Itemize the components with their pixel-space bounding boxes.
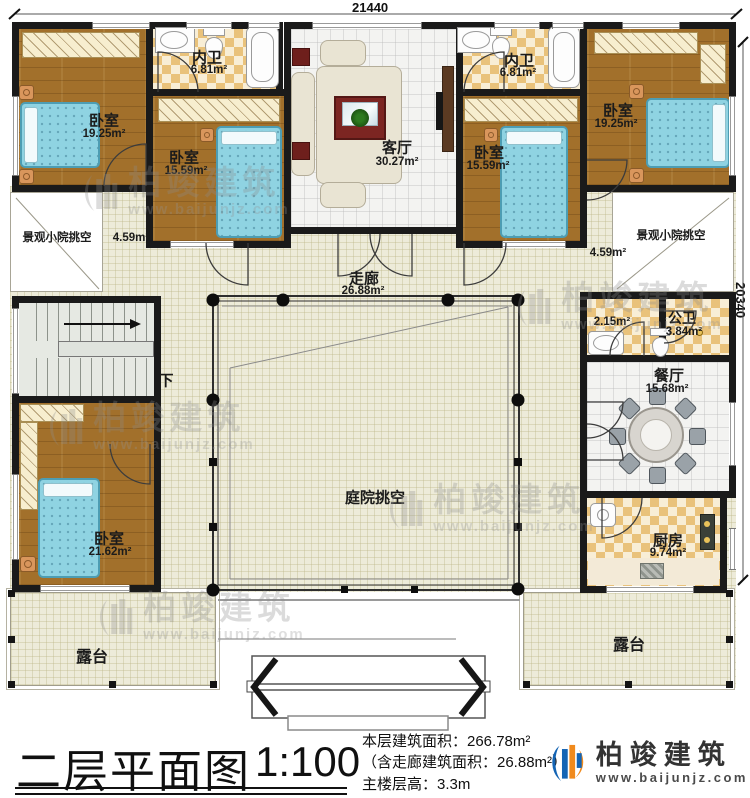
side-table: [292, 48, 310, 66]
room-area-dining: 15.68m²: [646, 383, 689, 395]
window: [12, 96, 19, 176]
terrace-post: [726, 590, 733, 597]
room-area-bedroom-mid-right: 15.59m²: [467, 160, 510, 172]
label-landscape-void-left: 景观小院挑空: [23, 229, 92, 245]
terrace-post: [109, 681, 116, 688]
brand-logo: 柏竣建筑 www.baijunjz.com: [548, 732, 748, 794]
wardrobe: [20, 404, 84, 422]
nightstand: [629, 168, 644, 183]
washbasin-icon: [160, 31, 188, 49]
room-area-bedroom-bottom-left: 21.62m²: [89, 546, 132, 558]
stair-rail: [58, 341, 154, 357]
stair-treads-upper: [36, 303, 154, 341]
armchair-top: [320, 40, 366, 66]
window: [502, 241, 566, 248]
window: [494, 22, 540, 29]
window: [186, 22, 232, 29]
wardrobe: [158, 98, 280, 122]
stair-treads-lower: [36, 358, 154, 396]
room-area-bath-right: 6.81m²: [500, 67, 536, 79]
nightstand: [20, 556, 36, 572]
terrace-post: [726, 636, 733, 643]
nightstand: [629, 84, 644, 99]
dimension-top: 21440: [352, 0, 388, 15]
brand-name: 柏竣建筑: [596, 741, 748, 771]
window: [40, 585, 130, 592]
wardrobe: [464, 98, 578, 122]
window: [92, 22, 150, 29]
terrace-post: [523, 681, 530, 688]
bed-pillow: [506, 131, 562, 145]
dresser: [700, 44, 726, 84]
info-floor-area: 本层建筑面积：266.78m²: [362, 730, 530, 751]
bed-pillow: [24, 107, 38, 163]
dining-chair: [609, 428, 626, 445]
room-area-living: 30.27m²: [376, 156, 419, 168]
nightstand: [19, 169, 34, 184]
area-landscape-void-left: 4.59m²: [113, 232, 149, 244]
window: [248, 22, 280, 29]
room-area-public-bath: 3.84m²: [666, 326, 702, 338]
label-landscape-void-right: 景观小院挑空: [637, 227, 706, 243]
bed-pillow: [221, 131, 277, 145]
terrace-post: [8, 681, 15, 688]
floorplan-page: 21440 20340 卧室 19.25m² 内卫 6.81m² 卧室 15.5…: [0, 0, 750, 798]
washbasin-icon: [593, 335, 619, 351]
stove-icon: [700, 514, 715, 550]
terrace-post: [8, 636, 15, 643]
entrance-area: [216, 592, 524, 688]
tv-icon: [436, 92, 443, 130]
dining-chair: [689, 428, 706, 445]
bathtub-inner: [553, 32, 575, 82]
bed-pillow: [712, 104, 726, 162]
wardrobe: [20, 422, 38, 510]
brand-url: www.baijunjz.com: [596, 770, 748, 785]
terrace-left: [10, 592, 216, 686]
stove-burner: [704, 537, 710, 543]
plan-scale: 1:100: [255, 738, 360, 786]
stove-burner: [704, 521, 710, 527]
kitchen-sink-bowl: [597, 509, 609, 521]
room-area-bedroom-top-left: 19.25m²: [83, 128, 126, 140]
armchair-bottom: [320, 182, 366, 208]
wardrobe: [594, 32, 698, 54]
window: [12, 308, 19, 394]
window: [606, 586, 694, 593]
terrace-post: [625, 681, 632, 688]
terrace-post: [726, 681, 733, 688]
dimension-right: 20340: [733, 282, 748, 318]
brand-logo-icon: [548, 737, 586, 789]
dining-table-top: [640, 419, 672, 451]
info-floor-height: 主楼层高：3.3m: [362, 773, 470, 794]
window: [552, 22, 584, 29]
room-area-bedroom-mid-left: 15.59m²: [165, 165, 208, 177]
title-underline: [15, 793, 347, 795]
title-underline: [15, 787, 347, 789]
side-table: [292, 142, 310, 160]
room-label-terrace-right: 露台: [613, 631, 645, 655]
window: [312, 22, 422, 29]
nightstand: [19, 85, 34, 100]
window: [729, 96, 736, 176]
stairs-down-label: 下: [158, 370, 173, 391]
tv-cabinet: [442, 66, 454, 152]
dining-chair: [649, 467, 666, 484]
window: [729, 402, 736, 466]
nightstand: [484, 128, 498, 142]
wardrobe: [22, 32, 140, 58]
room-area-washbasin: 2.15m²: [594, 316, 630, 328]
room-label-courtyard: 庭院挑空: [345, 487, 405, 508]
window: [12, 474, 19, 560]
floor-mat: [640, 563, 664, 579]
room-label-terrace-left: 露台: [76, 643, 108, 667]
room-label-living: 客厅: [382, 137, 412, 158]
terrace-post: [210, 681, 217, 688]
room-area-bedroom-top-right: 19.25m²: [595, 118, 638, 130]
info-corridor-area: （含走廊建筑面积：26.88m²）: [362, 751, 567, 772]
washbasin-icon: [462, 31, 490, 49]
sofa-left: [291, 72, 315, 176]
terrace-post: [8, 590, 15, 597]
room-area-corridor: 26.88m²: [342, 285, 385, 297]
nightstand: [200, 128, 214, 142]
window: [622, 22, 680, 29]
window: [170, 241, 234, 248]
bathtub-inner: [251, 32, 274, 82]
room-label-public-bath: 公卫: [668, 308, 696, 328]
room-area-kitchen: 9.74m²: [650, 547, 686, 559]
room-area-bath-left: 6.81m²: [191, 64, 227, 76]
window: [729, 528, 736, 570]
area-landscape-void-right: 4.59m²: [590, 247, 626, 259]
bed-pillow: [43, 483, 93, 497]
plant-icon: [351, 109, 369, 127]
